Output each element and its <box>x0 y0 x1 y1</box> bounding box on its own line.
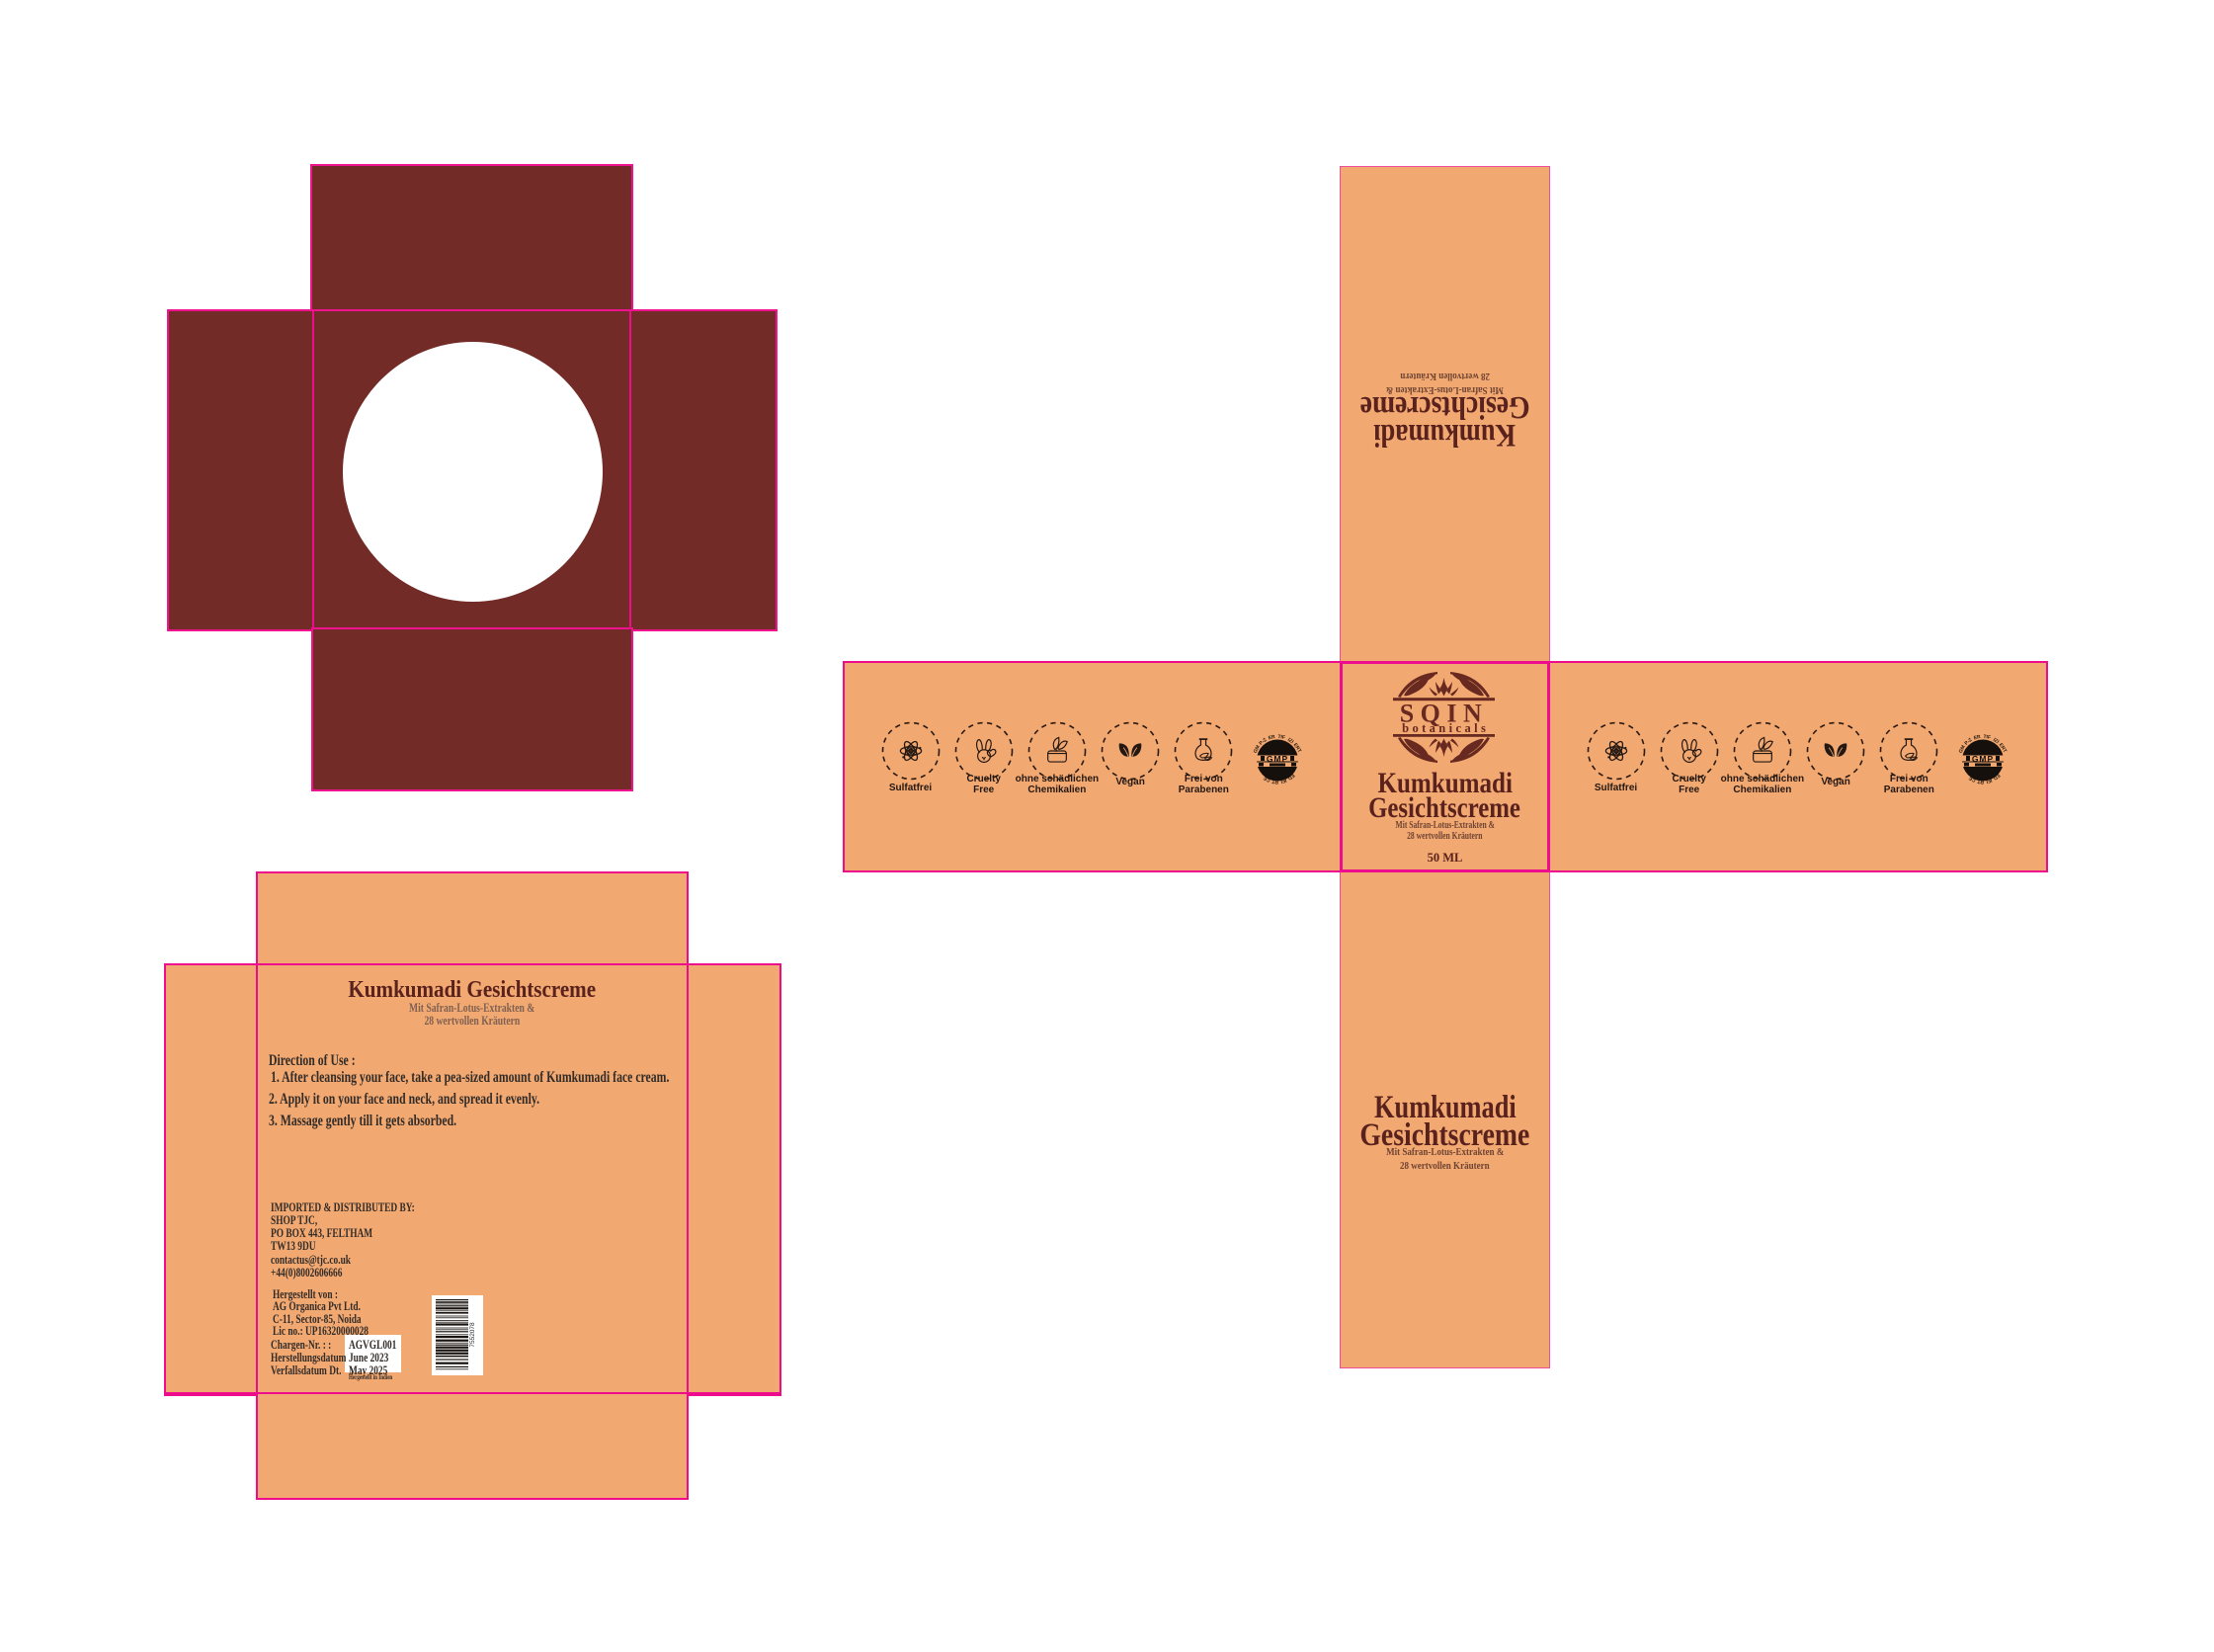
svg-text:botanicals: botanicals <box>1402 721 1489 735</box>
svg-text:7552078: 7552078 <box>469 1322 476 1348</box>
